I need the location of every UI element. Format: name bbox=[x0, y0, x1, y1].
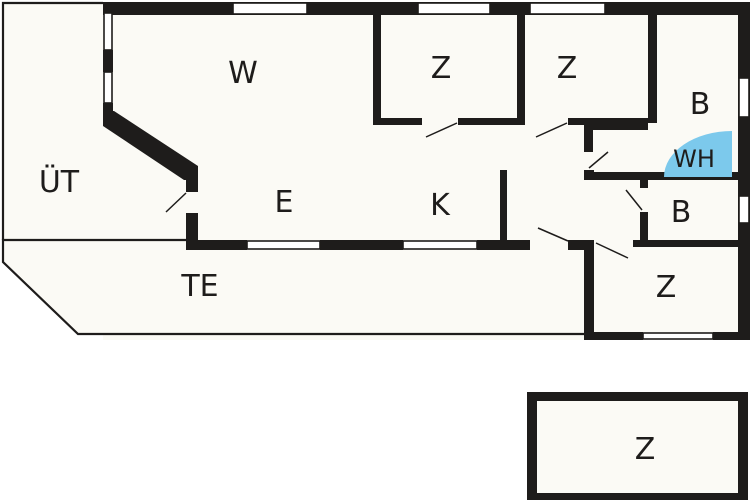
wall-segment bbox=[738, 2, 750, 340]
window bbox=[643, 333, 713, 339]
room-label-dining-area: E bbox=[275, 185, 294, 220]
window bbox=[403, 241, 477, 249]
wall-segment bbox=[517, 15, 525, 125]
window bbox=[233, 3, 307, 14]
wall-segment bbox=[640, 180, 648, 188]
wall-segment bbox=[584, 240, 594, 340]
wall-segment bbox=[103, 50, 113, 72]
wall-segment bbox=[633, 240, 738, 247]
window bbox=[739, 78, 749, 117]
window bbox=[247, 241, 320, 249]
room-label-bedroom-1: Z bbox=[431, 51, 452, 86]
wall-segment bbox=[584, 170, 594, 180]
wall-segment bbox=[373, 118, 422, 125]
wall-segment bbox=[648, 15, 657, 123]
wall-segment bbox=[584, 122, 593, 152]
wall-segment bbox=[103, 2, 113, 13]
window bbox=[530, 3, 605, 14]
wall-segment bbox=[458, 118, 517, 125]
room-label-bathroom-2: B bbox=[671, 195, 692, 230]
wall-segment bbox=[590, 122, 648, 130]
terrace-floor bbox=[3, 240, 584, 334]
room-label-living-room: W bbox=[228, 56, 258, 91]
wall-segment bbox=[584, 332, 643, 340]
wall-segment bbox=[320, 240, 403, 250]
wall-segment bbox=[568, 240, 584, 250]
room-label-bathroom-1: B bbox=[690, 87, 711, 122]
window bbox=[104, 72, 112, 103]
wall-segment bbox=[713, 332, 738, 340]
window bbox=[739, 196, 749, 223]
wall-segment bbox=[373, 15, 381, 125]
room-label-terrace: TE bbox=[180, 269, 218, 304]
room-label-covered-terrace: ÜT bbox=[39, 164, 80, 200]
room-label-bedroom-annex: Z bbox=[635, 432, 656, 467]
kitchen-partition-wall bbox=[500, 170, 507, 242]
wall-segment bbox=[186, 166, 198, 192]
window bbox=[104, 13, 112, 50]
room-label-bedroom-3: Z bbox=[656, 270, 677, 305]
room-label-bedroom-2: Z bbox=[557, 51, 578, 86]
room-label-kitchen: K bbox=[430, 188, 451, 223]
floor-plan-page: W Z Z B WH ÜT E K B Z TE Z bbox=[0, 0, 750, 500]
floor-plan: W Z Z B WH ÜT E K B Z TE Z bbox=[0, 0, 750, 500]
wall-segment bbox=[186, 240, 247, 250]
window bbox=[418, 3, 490, 14]
room-label-whirlpool: WH bbox=[673, 145, 715, 173]
wall-segment bbox=[186, 213, 198, 242]
